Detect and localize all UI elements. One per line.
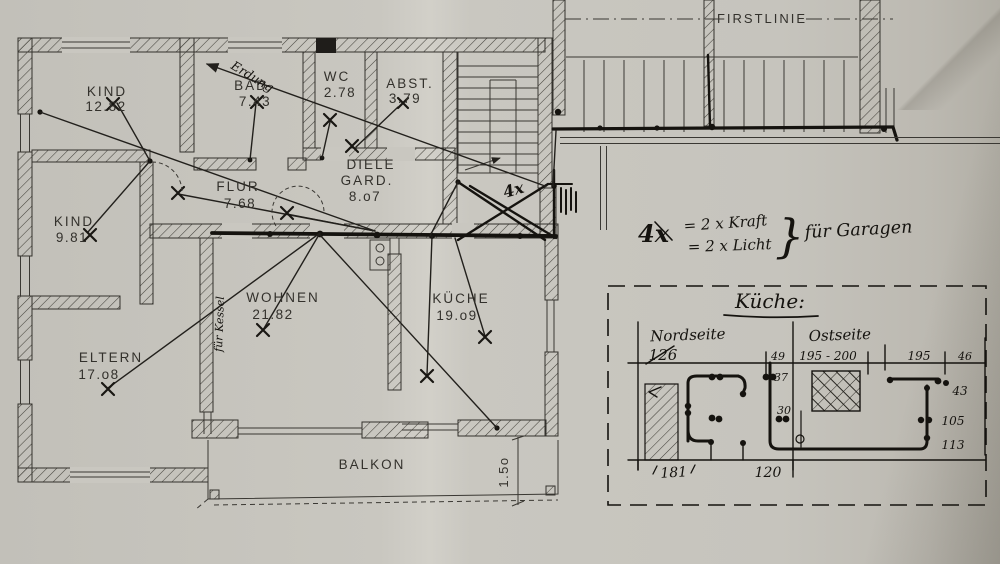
dimension-1-50: 1.5o xyxy=(496,456,511,487)
dim-113: 113 xyxy=(942,438,965,452)
note-kessel: für Kessel xyxy=(212,296,227,354)
room-area-wc: 2.78 xyxy=(324,85,356,100)
kitchen-sink-symbol xyxy=(370,240,390,270)
garage-note-line1: = 2 x Kraft xyxy=(683,211,769,235)
dim-120: 120 xyxy=(755,465,782,481)
room-area-bad: 7.43 xyxy=(239,94,271,109)
kitchen-sketch: Küche: Nordseite Ostseite xyxy=(608,286,986,505)
ridge-line-label: FIRSTLINIE xyxy=(717,11,807,26)
dim-49: 49 xyxy=(770,350,785,363)
room-label-diele-2: GARD. xyxy=(341,173,394,188)
room-area-flur: 7.68 xyxy=(224,196,256,211)
dim-195: 195 xyxy=(908,349,931,363)
balcony-dimension: 1.5o xyxy=(496,456,511,487)
kitchen-north-label: Nordseite xyxy=(649,325,726,346)
floorplan-svg: 1.5o FIRSTLINIE xyxy=(0,0,1000,564)
garage-note: 4x = 2 x Kraft = 2 x Licht } für Garagen xyxy=(638,209,913,263)
room-label-diele: DIELE xyxy=(346,157,395,172)
note-stair-4x: 4x xyxy=(501,178,527,202)
scanned-floorplan-page: 1.5o FIRSTLINIE xyxy=(0,0,1000,564)
dim-195-200: 195 - 200 xyxy=(799,349,857,363)
dim-30: 30 xyxy=(777,404,791,417)
kitchen-east-label: Ostseite xyxy=(808,325,871,345)
roof-section: FIRSTLINIE xyxy=(553,11,1000,230)
room-area-wohnen: 21.82 xyxy=(252,307,293,322)
dim-181: 181 xyxy=(660,464,688,481)
room-label-eltern: ELTERN xyxy=(79,350,143,365)
kitchen-sketch-frame xyxy=(628,322,985,477)
room-label-balkon: BALKON xyxy=(339,457,406,472)
room-labels: KIND 12.82 BAD 7.43 WC 2.78 ABST. 3.79 F… xyxy=(54,69,490,472)
room-area-diele: 8.o7 xyxy=(349,189,381,204)
room-label-kind2: KIND xyxy=(54,214,94,229)
garage-note-brace: } xyxy=(775,209,804,263)
staircase xyxy=(458,52,538,173)
dim-126: 126 xyxy=(649,346,678,364)
garage-note-rhs: für Garagen xyxy=(802,217,913,243)
room-label-kueche: KÜCHE xyxy=(432,291,489,306)
room-label-wc: WC xyxy=(324,69,351,84)
garage-note-line2: = 2 x Licht xyxy=(688,235,773,256)
room-label-wohnen: WOHNEN xyxy=(246,290,320,305)
room-area-kind1: 12.82 xyxy=(85,99,126,114)
room-area-abst: 3.79 xyxy=(389,91,421,106)
dim-43: 43 xyxy=(951,384,968,398)
room-area-eltern: 17.o8 xyxy=(78,367,119,382)
dim-46: 46 xyxy=(957,350,972,363)
room-area-kind2: 9.81 xyxy=(56,230,88,245)
room-label-abst: ABST. xyxy=(386,76,434,91)
room-label-flur: FLUR xyxy=(216,179,259,194)
dim-105: 105 xyxy=(942,414,965,428)
kitchen-sketch-title: Küche: xyxy=(734,289,805,313)
room-label-kind1: KIND xyxy=(87,84,127,99)
room-area-kueche: 19.o9 xyxy=(436,308,477,323)
dim-37: 37 xyxy=(774,371,788,384)
